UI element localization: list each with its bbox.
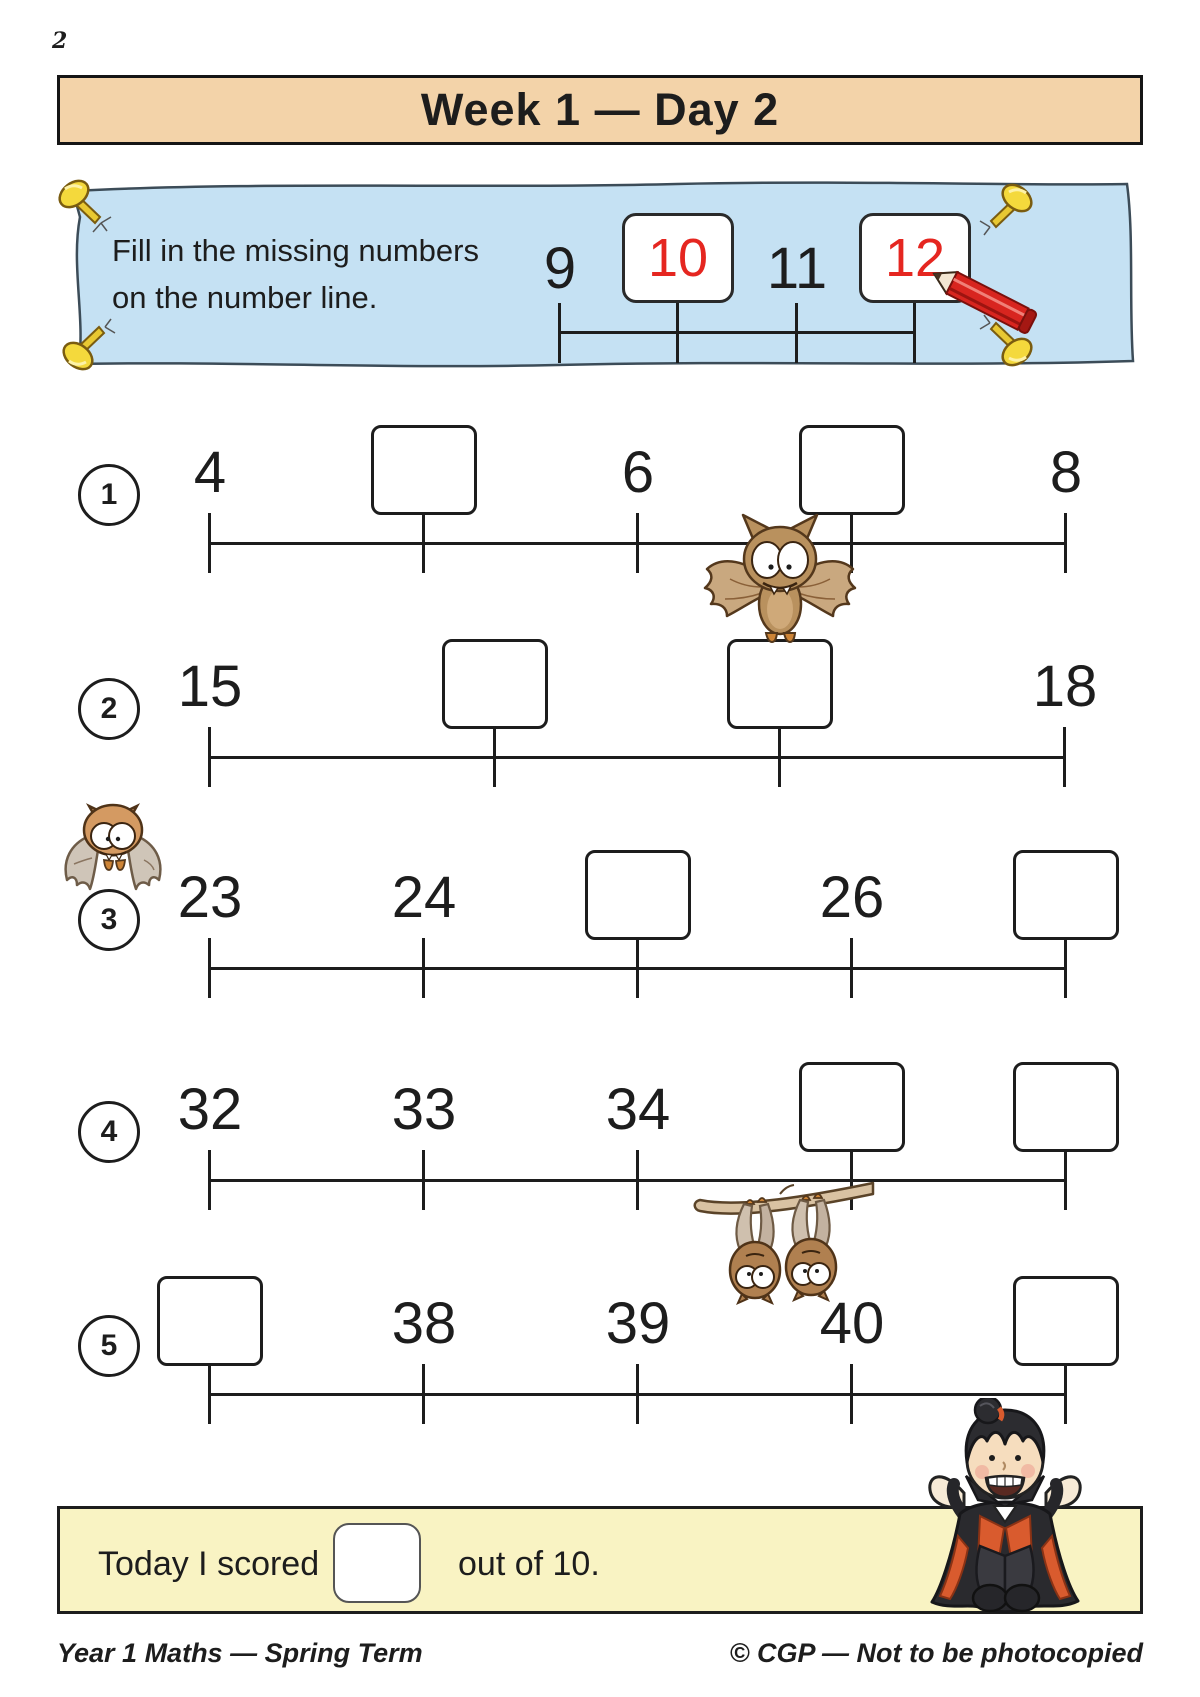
question-3: 3 23 24 26 xyxy=(0,803,1200,1018)
tick-mark xyxy=(778,727,781,787)
tick-mark xyxy=(422,938,425,998)
question-1: 1 4 6 8 xyxy=(0,378,1200,593)
answer-box[interactable] xyxy=(442,639,548,729)
bat-icon xyxy=(700,509,860,644)
number-label: 4 xyxy=(140,439,280,506)
bat-wings-down-icon xyxy=(58,798,168,898)
tick-mark xyxy=(676,303,679,363)
answer-box[interactable] xyxy=(1013,1062,1119,1152)
question-number-badge: 1 xyxy=(78,464,140,526)
tick-mark xyxy=(636,1364,639,1424)
answer-box[interactable] xyxy=(371,425,477,515)
footer-series-title: Year 1 Maths — Spring Term xyxy=(57,1638,423,1669)
worksheet-page: 2 Week 1 — Day 2 Fill in the missing num… xyxy=(0,0,1200,1697)
number-label: 33 xyxy=(354,1076,494,1143)
hanging-bats-icon xyxy=(660,1178,875,1306)
example-number: 11 xyxy=(727,235,867,302)
number-line xyxy=(210,756,1065,759)
tick-mark xyxy=(208,513,211,573)
tick-mark xyxy=(208,727,211,787)
pin-icon xyxy=(978,181,1036,239)
example-answer: 10 xyxy=(648,227,708,289)
tick-mark xyxy=(208,1150,211,1210)
question-number-badge: 2 xyxy=(78,678,140,740)
tick-mark xyxy=(913,303,916,363)
tick-mark xyxy=(493,727,496,787)
tick-mark xyxy=(558,303,561,363)
tick-mark xyxy=(850,938,853,998)
tick-mark xyxy=(208,1364,211,1424)
number-label: 6 xyxy=(568,439,708,506)
example-number: 9 xyxy=(490,235,630,302)
instruction-line-2: on the number line. xyxy=(112,274,479,321)
example-answer-box: 10 xyxy=(622,213,734,303)
answer-box[interactable] xyxy=(1013,1276,1119,1366)
question-number: 4 xyxy=(101,1115,118,1149)
tick-mark xyxy=(208,938,211,998)
tick-mark xyxy=(422,1364,425,1424)
page-number: 2 xyxy=(52,28,67,54)
number-label: 24 xyxy=(354,864,494,931)
number-label: 15 xyxy=(140,653,280,720)
tick-mark xyxy=(636,938,639,998)
number-label: 38 xyxy=(354,1290,494,1357)
page-title: Week 1 — Day 2 xyxy=(421,84,779,136)
answer-box[interactable] xyxy=(727,639,833,729)
score-box[interactable] xyxy=(333,1523,421,1603)
instruction-banner: Fill in the missing numbers on the numbe… xyxy=(57,175,1143,370)
question-number-badge: 4 xyxy=(78,1101,140,1163)
tick-mark xyxy=(795,303,798,363)
question-4: 4 32 33 34 xyxy=(0,1015,1200,1230)
question-number: 2 xyxy=(101,692,118,726)
answer-box[interactable] xyxy=(585,850,691,940)
number-label: 8 xyxy=(996,439,1136,506)
instruction-line-1: Fill in the missing numbers xyxy=(112,227,479,274)
number-label: 26 xyxy=(782,864,922,931)
number-label: 32 xyxy=(140,1076,280,1143)
header-banner: Week 1 — Day 2 xyxy=(57,75,1143,145)
score-text-prefix: Today I scored xyxy=(98,1545,319,1584)
tick-mark xyxy=(1064,1150,1067,1210)
question-number-badge: 3 xyxy=(78,889,140,951)
question-number: 1 xyxy=(101,478,118,512)
question-number: 5 xyxy=(101,1329,118,1363)
pin-icon xyxy=(978,311,1036,369)
example-number-line xyxy=(560,331,915,334)
pin-icon xyxy=(59,315,117,373)
instruction-text: Fill in the missing numbers on the numbe… xyxy=(112,227,479,321)
tick-mark xyxy=(1064,513,1067,573)
answer-box[interactable] xyxy=(157,1276,263,1366)
tick-mark xyxy=(636,513,639,573)
answer-box[interactable] xyxy=(1013,850,1119,940)
tick-mark xyxy=(636,1150,639,1210)
question-number-badge: 5 xyxy=(78,1315,140,1377)
tick-mark xyxy=(1064,938,1067,998)
answer-box[interactable] xyxy=(799,425,905,515)
number-label: 34 xyxy=(568,1076,708,1143)
vampire-icon xyxy=(920,1398,1090,1618)
answer-box[interactable] xyxy=(799,1062,905,1152)
tick-mark xyxy=(850,1364,853,1424)
question-number: 3 xyxy=(101,903,118,937)
question-2: 2 15 18 xyxy=(0,592,1200,807)
score-text-suffix: out of 10. xyxy=(458,1545,600,1584)
pin-icon xyxy=(55,177,113,235)
footer-copyright: © CGP — Not to be photocopied xyxy=(730,1638,1143,1669)
number-label: 18 xyxy=(995,653,1135,720)
tick-mark xyxy=(422,1150,425,1210)
tick-mark xyxy=(422,513,425,573)
tick-mark xyxy=(1063,727,1066,787)
